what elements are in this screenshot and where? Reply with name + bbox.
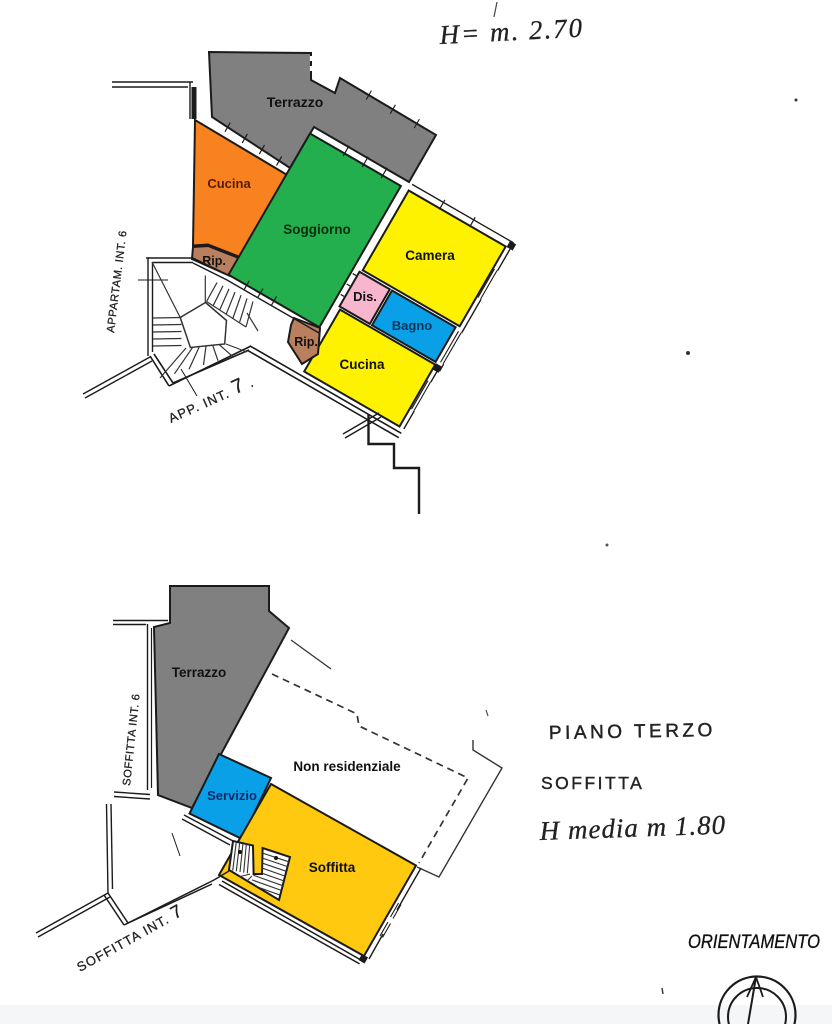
svg-text:Soffitta: Soffitta bbox=[309, 860, 356, 875]
svg-text:Rip.: Rip. bbox=[294, 335, 318, 349]
svg-text:Soggiorno: Soggiorno bbox=[283, 222, 351, 237]
svg-text:PIANO TERZO: PIANO TERZO bbox=[549, 720, 716, 744]
svg-text:Terrazzo: Terrazzo bbox=[267, 94, 324, 110]
svg-text:Dis.: Dis. bbox=[353, 289, 377, 304]
svg-text:Cucina: Cucina bbox=[339, 357, 385, 372]
svg-text:Non residenziale: Non residenziale bbox=[293, 759, 401, 774]
svg-text:Terrazzo: Terrazzo bbox=[172, 665, 227, 680]
svg-text:Servizio: Servizio bbox=[207, 788, 257, 803]
svg-text:Cucina: Cucina bbox=[207, 176, 251, 191]
svg-text:SOFFITTA: SOFFITTA bbox=[541, 773, 644, 793]
svg-text:Camera: Camera bbox=[405, 248, 455, 263]
svg-text:ORIENTAMENTO: ORIENTAMENTO bbox=[688, 932, 820, 953]
svg-text:Bagno: Bagno bbox=[392, 318, 433, 333]
svg-text:Rip.: Rip. bbox=[202, 254, 226, 268]
